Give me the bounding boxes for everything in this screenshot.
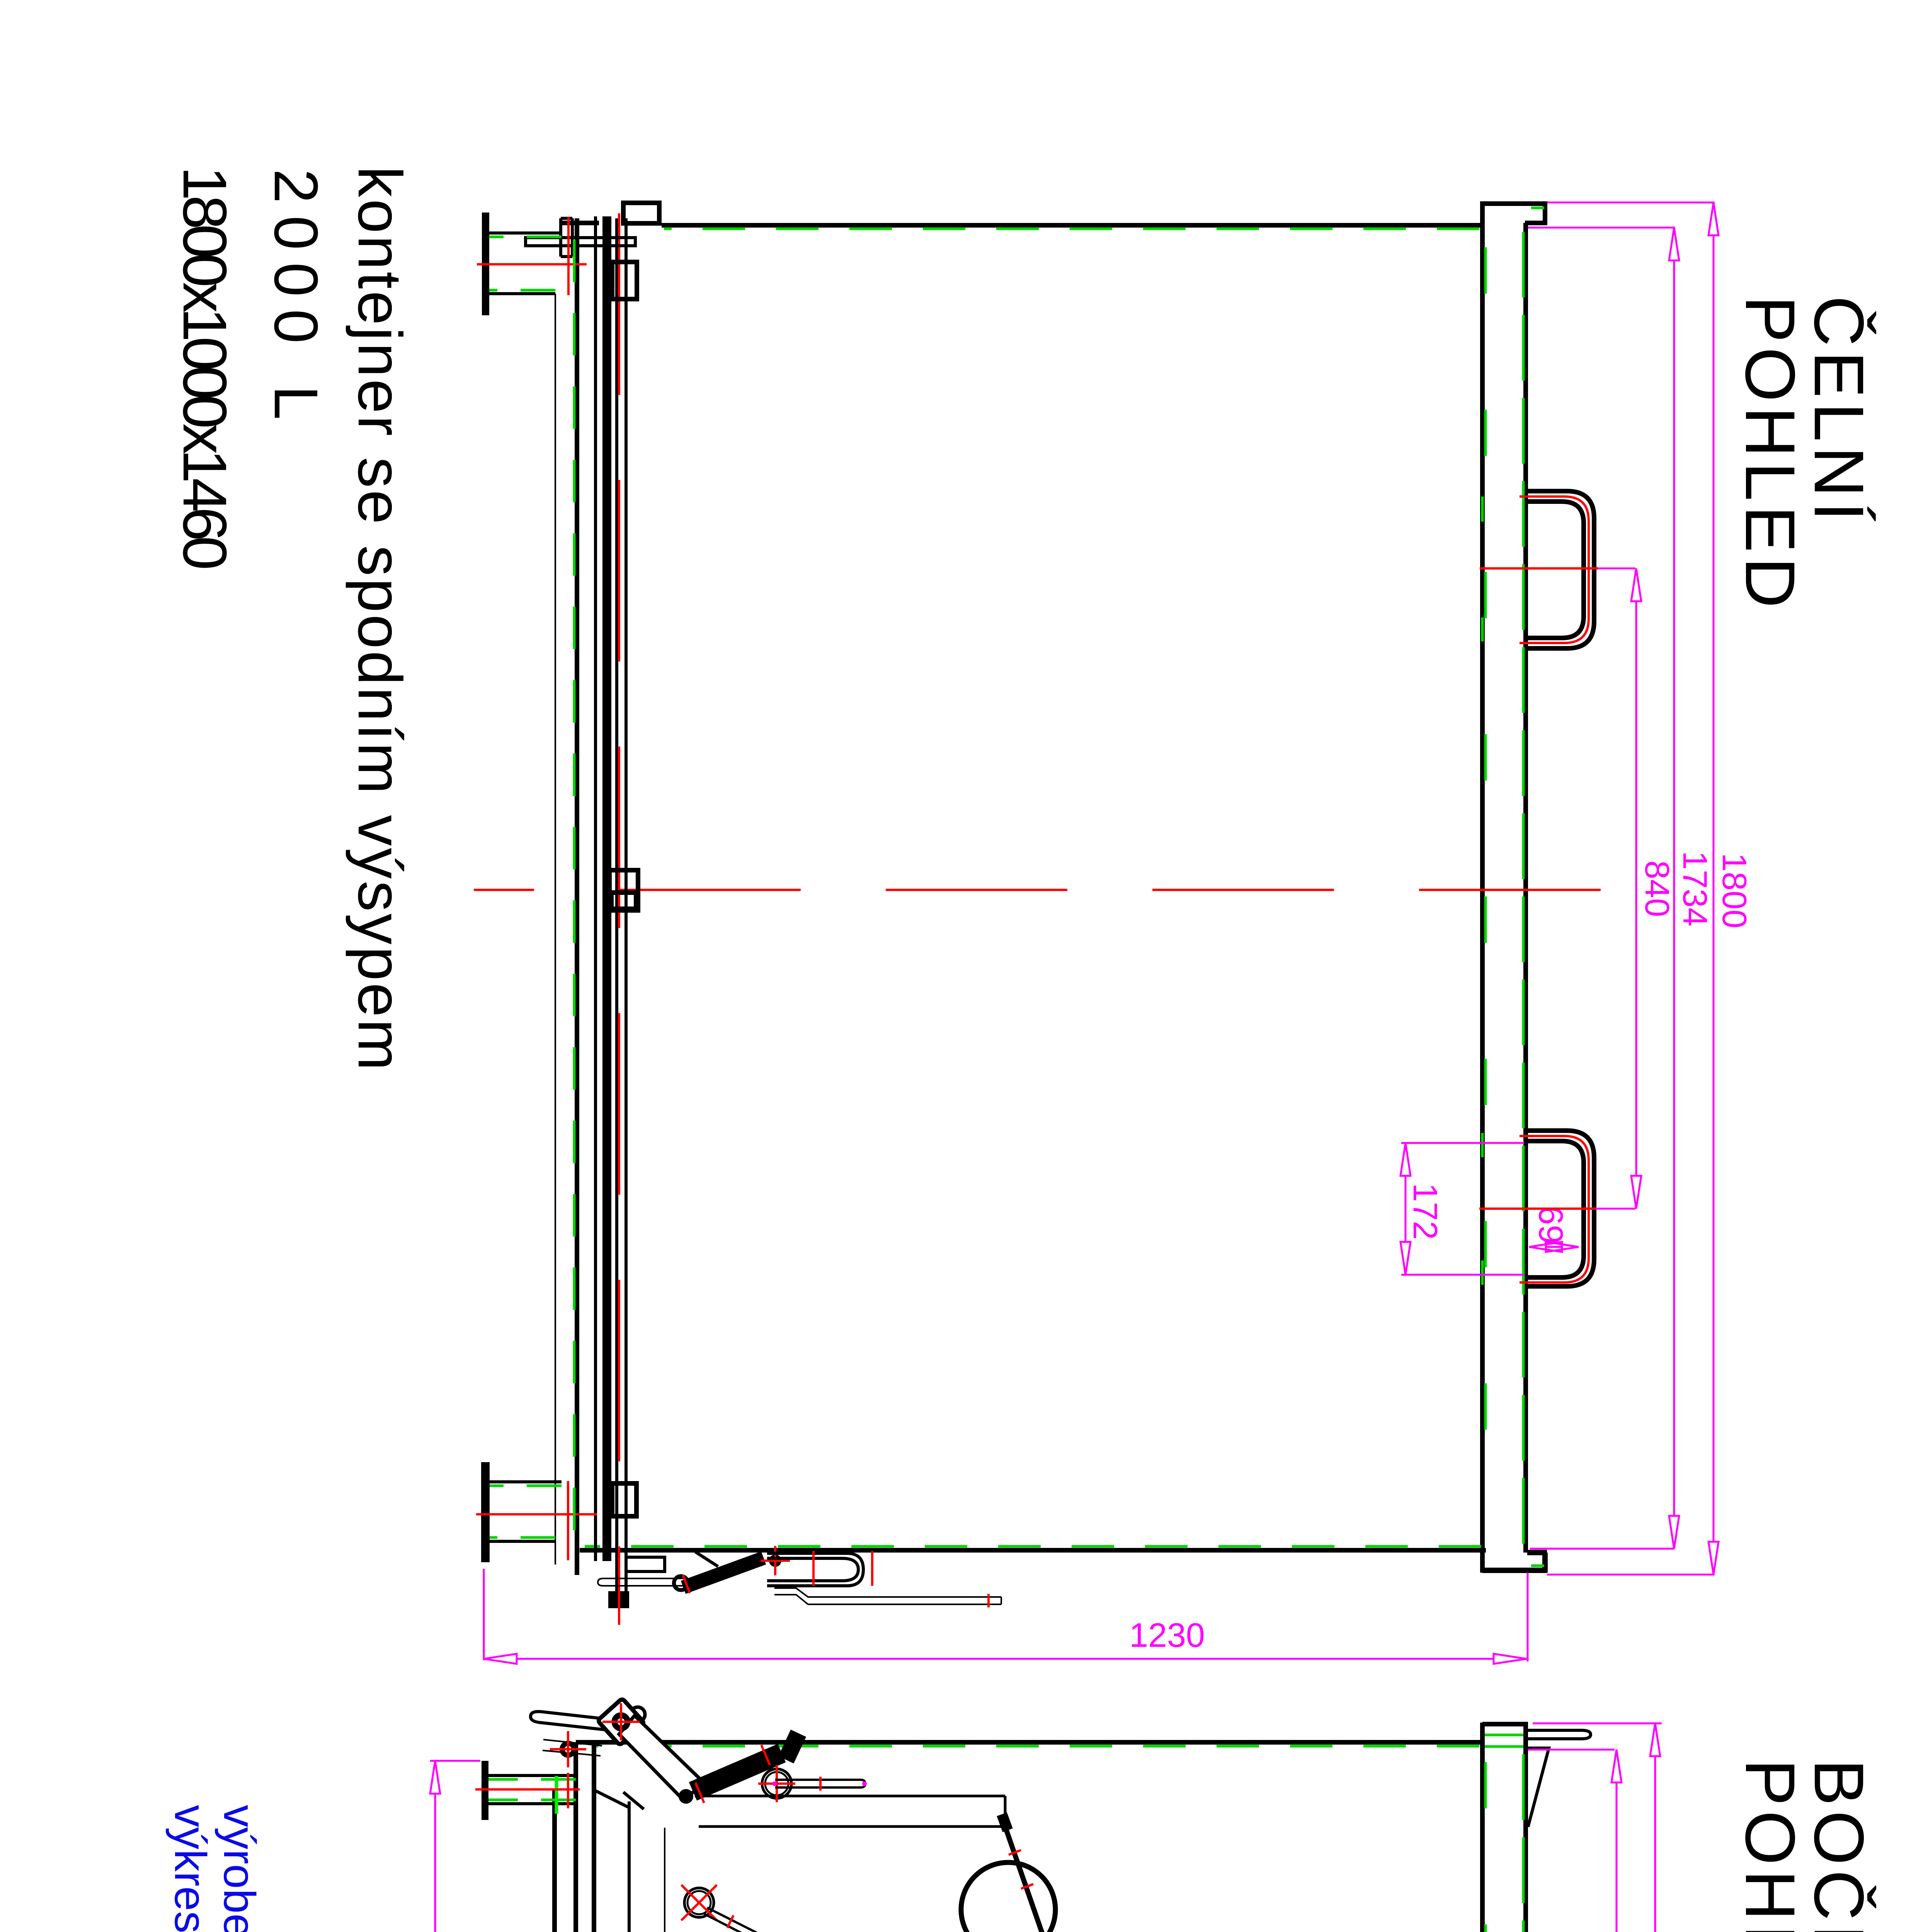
svg-text:1734: 1734: [1676, 851, 1714, 927]
svg-text:840: 840: [1638, 861, 1676, 917]
svg-text:výrobek:: výrobek:: [214, 1805, 264, 1932]
svg-text:1800x1000x1460: 1800x1000x1460: [170, 166, 240, 568]
svg-text:2000 L: 2000 L: [262, 169, 331, 432]
svg-text:BOČNÍ: BOČNÍ: [1800, 1759, 1879, 1932]
svg-text:výkres:: výkres:: [165, 1805, 215, 1932]
svg-text:1230: 1230: [1129, 1616, 1205, 1654]
svg-text:172: 172: [1406, 1183, 1445, 1240]
svg-text:POHLED: POHLED: [1731, 1759, 1810, 1932]
svg-text:1800: 1800: [1715, 853, 1754, 929]
svg-text:69: 69: [1532, 1206, 1570, 1244]
svg-text:POHLED: POHLED: [1731, 296, 1810, 612]
svg-text:ČELNÍ: ČELNÍ: [1800, 296, 1879, 526]
svg-text:kontejner se spodním výsypem: kontejner se spodním výsypem: [345, 166, 415, 1072]
